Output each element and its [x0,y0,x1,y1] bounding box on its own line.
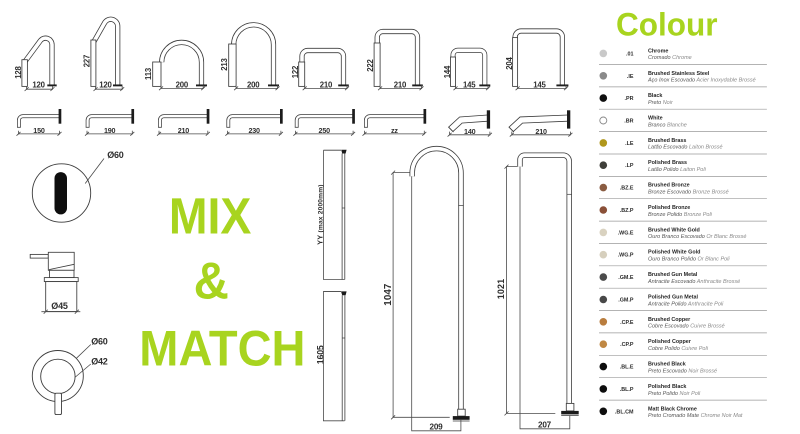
svg-text:Brushed Brass: Brushed Brass [648,138,686,144]
svg-text:.BL.CM: .BL.CM [615,409,634,415]
svg-text:145: 145 [463,81,476,90]
svg-text:190: 190 [104,126,116,135]
svg-text:.BL.E: .BL.E [620,365,634,371]
svg-text:.GM.P: .GM.P [618,298,634,304]
svg-text:Colour: Colour [616,6,718,43]
svg-text:150: 150 [33,126,45,135]
svg-text:.PR: .PR [625,96,634,102]
svg-text:Brushed Copper: Brushed Copper [648,317,691,323]
svg-text:.BZ.E: .BZ.E [620,186,634,192]
svg-text:Polished Copper: Polished Copper [648,339,692,345]
svg-text:Polished Bronze: Polished Bronze [648,205,690,211]
svg-text:Latão Polido Laiton Poli: Latão Polido Laiton Poli [648,167,707,173]
svg-text:213: 213 [220,57,229,70]
svg-text:Matt Black Chrome: Matt Black Chrome [648,406,697,412]
svg-text:Preto Polido Noir Poli: Preto Polido Noir Poli [648,391,701,397]
svg-text:Brushed Gun Metal: Brushed Gun Metal [648,272,698,278]
svg-text:Ø60: Ø60 [107,150,124,160]
svg-text:250: 250 [319,126,331,135]
svg-text:Polished Gun Metal: Polished Gun Metal [648,295,699,301]
svg-text:1021: 1021 [496,279,506,299]
svg-text:113: 113 [144,67,153,80]
svg-text:204: 204 [505,56,514,69]
svg-text:210: 210 [394,81,407,90]
svg-text:&: & [194,251,229,310]
svg-text:140: 140 [464,127,476,136]
svg-text:Preto Escovado Noir Brossé: Preto Escovado Noir Brossé [648,368,717,374]
svg-text:YY (max 2000mm): YY (max 2000mm) [315,184,324,245]
svg-text:209: 209 [429,423,443,432]
svg-text:.LP: .LP [625,163,634,169]
svg-text:.WG.E: .WG.E [618,230,634,236]
svg-text:Black: Black [648,93,662,99]
svg-text:207: 207 [538,420,552,429]
svg-text:.CP.E: .CP.E [620,320,634,326]
svg-text:Ø60: Ø60 [91,337,108,347]
svg-text:.LE: .LE [625,141,634,147]
svg-text:Brushed Bronze: Brushed Bronze [648,183,690,189]
svg-text:Polished Black: Polished Black [648,384,686,390]
svg-text:230: 230 [248,126,260,135]
svg-text:Polished White Gold: Polished White Gold [648,250,700,256]
svg-text:.01: .01 [626,51,634,57]
svg-text:122: 122 [291,65,300,78]
svg-text:Ø45: Ø45 [51,301,68,311]
svg-text:200: 200 [247,81,260,90]
svg-text:.GM.E: .GM.E [618,275,634,281]
svg-text:MATCH: MATCH [139,321,305,377]
svg-text:.BR: .BR [624,119,633,125]
svg-text:.IE: .IE [627,74,634,80]
svg-text:200: 200 [176,81,189,90]
svg-text:Ø42: Ø42 [91,356,108,366]
svg-text:Ouro Branco Escovado Or Blanc: Ouro Branco Escovado Or Blanc Brossé [648,234,746,240]
svg-text:210: 210 [320,81,333,90]
svg-text:Preto Noir: Preto Noir [648,100,674,106]
svg-text:Branco Blanche: Branco Blanche [648,122,687,128]
svg-text:Cobre Polido Cuivre Poli: Cobre Polido Cuivre Poli [648,346,709,352]
svg-text:Antracite Escovado Anthracite: Antracite Escovado Anthracite Brossé [647,279,740,285]
svg-text:MIX: MIX [169,189,252,245]
svg-text:Brushed Black: Brushed Black [648,362,686,368]
svg-text:222: 222 [366,58,375,71]
svg-text:227: 227 [83,55,92,67]
svg-text:Preto Cromado Mate Chrome Noir: Preto Cromado Mate Chrome Noir Mat [648,413,743,419]
svg-text:.WG.P: .WG.P [618,253,634,259]
svg-text:.BL.P: .BL.P [620,387,634,393]
svg-text:128: 128 [14,65,23,78]
svg-text:Brushed Stainless Steel: Brushed Stainless Steel [648,71,710,77]
svg-text:Bronze Escovado Bronze Brossé: Bronze Escovado Bronze Brossé [648,189,729,195]
svg-text:Chrome: Chrome [648,48,668,54]
svg-text:.BZ.P: .BZ.P [620,208,634,214]
svg-text:145: 145 [533,81,546,90]
svg-text:Aço Inox Escovado Acier Inoxyd: Aço Inox Escovado Acier Inoxydable Bross… [647,78,756,84]
svg-text:Antracite Polido Anthracite Po: Antracite Polido Anthracite Poli [647,301,724,307]
svg-text:144: 144 [443,65,452,78]
svg-text:White: White [648,116,663,122]
svg-text:1605: 1605 [315,345,325,364]
svg-text:zz: zz [391,126,398,135]
svg-text:Brushed White Gold: Brushed White Gold [648,227,700,233]
svg-text:Cobre Escovado Cuivre Brossé: Cobre Escovado Cuivre Brossé [648,324,725,330]
svg-text:Polished Brass: Polished Brass [648,160,687,166]
svg-text:210: 210 [178,126,190,135]
svg-text:Ouro Branco Polido Or Blanc Po: Ouro Branco Polido Or Blanc Poli [648,257,730,263]
svg-text:120: 120 [99,80,112,89]
svg-text:120: 120 [32,80,45,89]
svg-text:Cromado Chrome: Cromado Chrome [648,55,692,61]
svg-text:Latão Escovado Laiton Brossé: Latão Escovado Laiton Brossé [648,145,723,151]
svg-text:.CP.P: .CP.P [620,342,634,348]
svg-text:1047: 1047 [383,283,394,306]
svg-text:210: 210 [535,127,547,136]
svg-text:Bronze Polido Bronze Poli: Bronze Polido Bronze Poli [648,212,713,218]
